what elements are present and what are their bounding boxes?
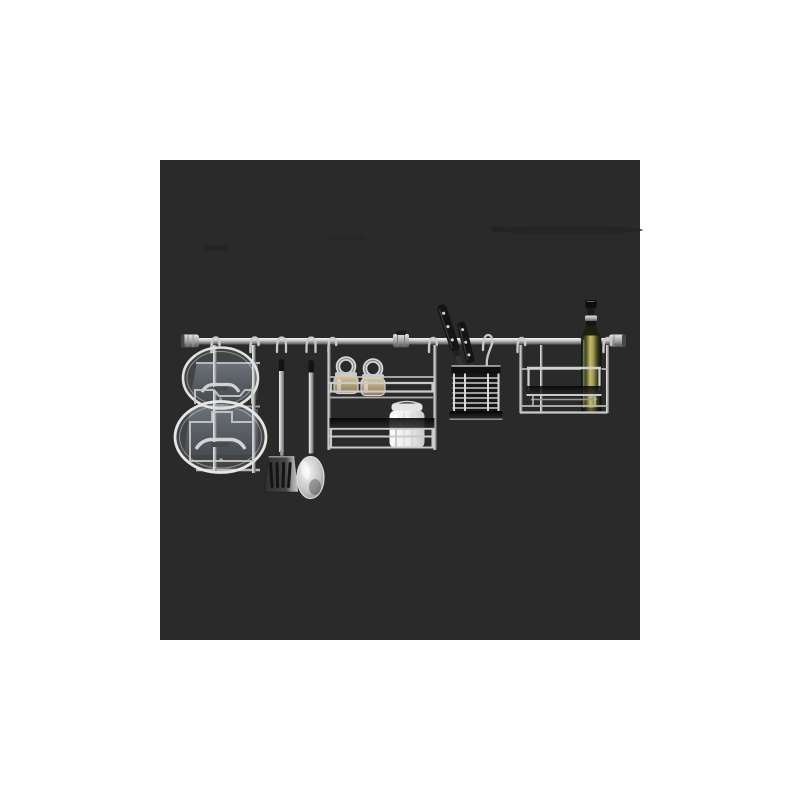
spatula-blade — [264, 456, 299, 492]
product-photo-page — [0, 0, 800, 800]
spatula-cap — [279, 359, 285, 372]
basket-base — [450, 411, 503, 420]
rail-bracket-knob — [396, 331, 406, 336]
bottle-collar — [585, 316, 597, 322]
basket-mesh-wires — [453, 378, 500, 408]
spice-rack-dark-shelf — [330, 418, 435, 429]
preserve-jar-lid — [392, 404, 423, 412]
bottle-rack-post-right — [606, 345, 609, 413]
bottle-spout-stem — [588, 308, 595, 316]
product-photo — [0, 0, 800, 800]
bottle-rack-post-mid — [540, 345, 543, 413]
spoon-handle — [309, 373, 314, 454]
spatula-handle — [279, 371, 284, 452]
spice-rack-post-right — [434, 345, 437, 450]
bottle-rack-dark-shelf — [527, 386, 602, 395]
spoon-cap — [308, 360, 314, 374]
bottle-rack-post-left — [520, 345, 523, 413]
rail-bracket-sleeve — [393, 334, 409, 348]
